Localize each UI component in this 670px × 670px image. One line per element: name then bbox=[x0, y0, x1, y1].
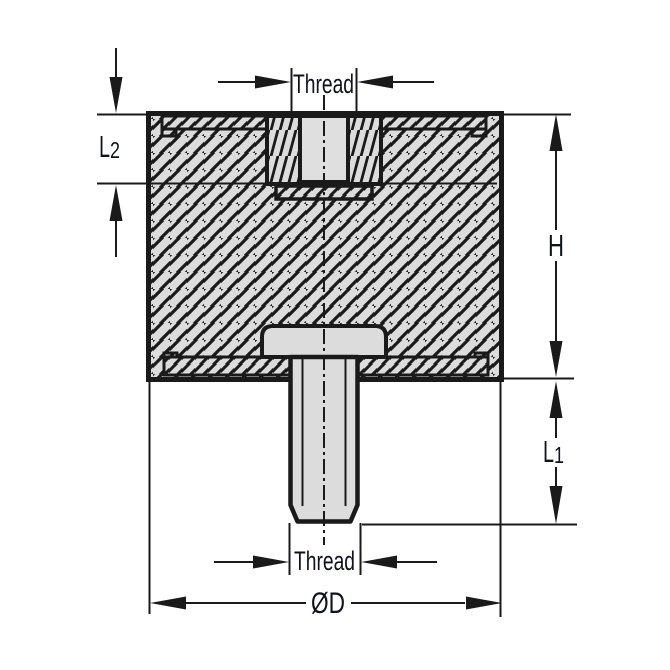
od-label: ØD bbox=[311, 587, 345, 620]
od-arrow-right bbox=[466, 597, 502, 610]
l2-label-base: L bbox=[99, 129, 110, 164]
thread-bottom-arrow-left bbox=[361, 556, 397, 569]
thread-top-label: Thread bbox=[293, 69, 354, 99]
thread-bottom-label: Thread bbox=[294, 546, 355, 576]
rubber-mount-section-drawing: Thread L2 H L1 Thread ØD bbox=[0, 0, 670, 670]
l1-label-sub: 1 bbox=[554, 442, 564, 468]
technical-drawing-canvas: Thread L2 H L1 Thread ØD bbox=[0, 0, 670, 670]
bottom-plate-right bbox=[358, 357, 488, 375]
thread-top-arrow-left bbox=[357, 76, 393, 89]
l1-arrow-up bbox=[550, 381, 563, 418]
h-label: H bbox=[548, 228, 564, 263]
l2-arrow-down bbox=[110, 77, 123, 113]
l2-label-sub: 2 bbox=[110, 137, 120, 163]
l1-label-base: L bbox=[543, 434, 554, 469]
od-arrow-left bbox=[150, 597, 186, 610]
thread-top-arrow-right bbox=[255, 76, 291, 89]
thread-bottom-arrow-right bbox=[253, 556, 289, 569]
l2-label: L2 bbox=[99, 129, 120, 164]
h-arrow-down bbox=[550, 341, 563, 377]
l2-arrow-up bbox=[110, 185, 123, 221]
bottom-plate-left bbox=[164, 357, 290, 375]
h-arrow-up bbox=[550, 114, 563, 151]
l1-arrow-down bbox=[550, 486, 563, 524]
l1-label: L1 bbox=[543, 434, 564, 469]
